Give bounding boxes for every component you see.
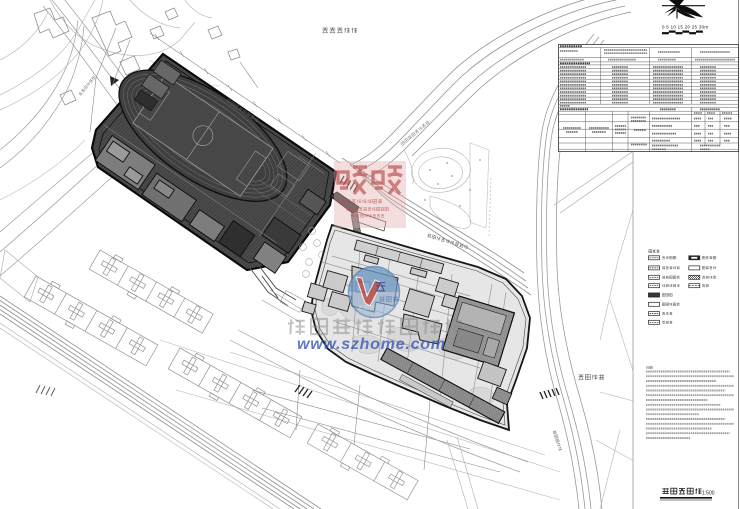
svg-text:1:500: 1:500 bbox=[702, 491, 715, 497]
svg-text:0 5 10 15 20 25 30m: 0 5 10 15 20 25 30m bbox=[662, 25, 708, 30]
svg-text:www.szhome.com: www.szhome.com bbox=[297, 336, 445, 353]
